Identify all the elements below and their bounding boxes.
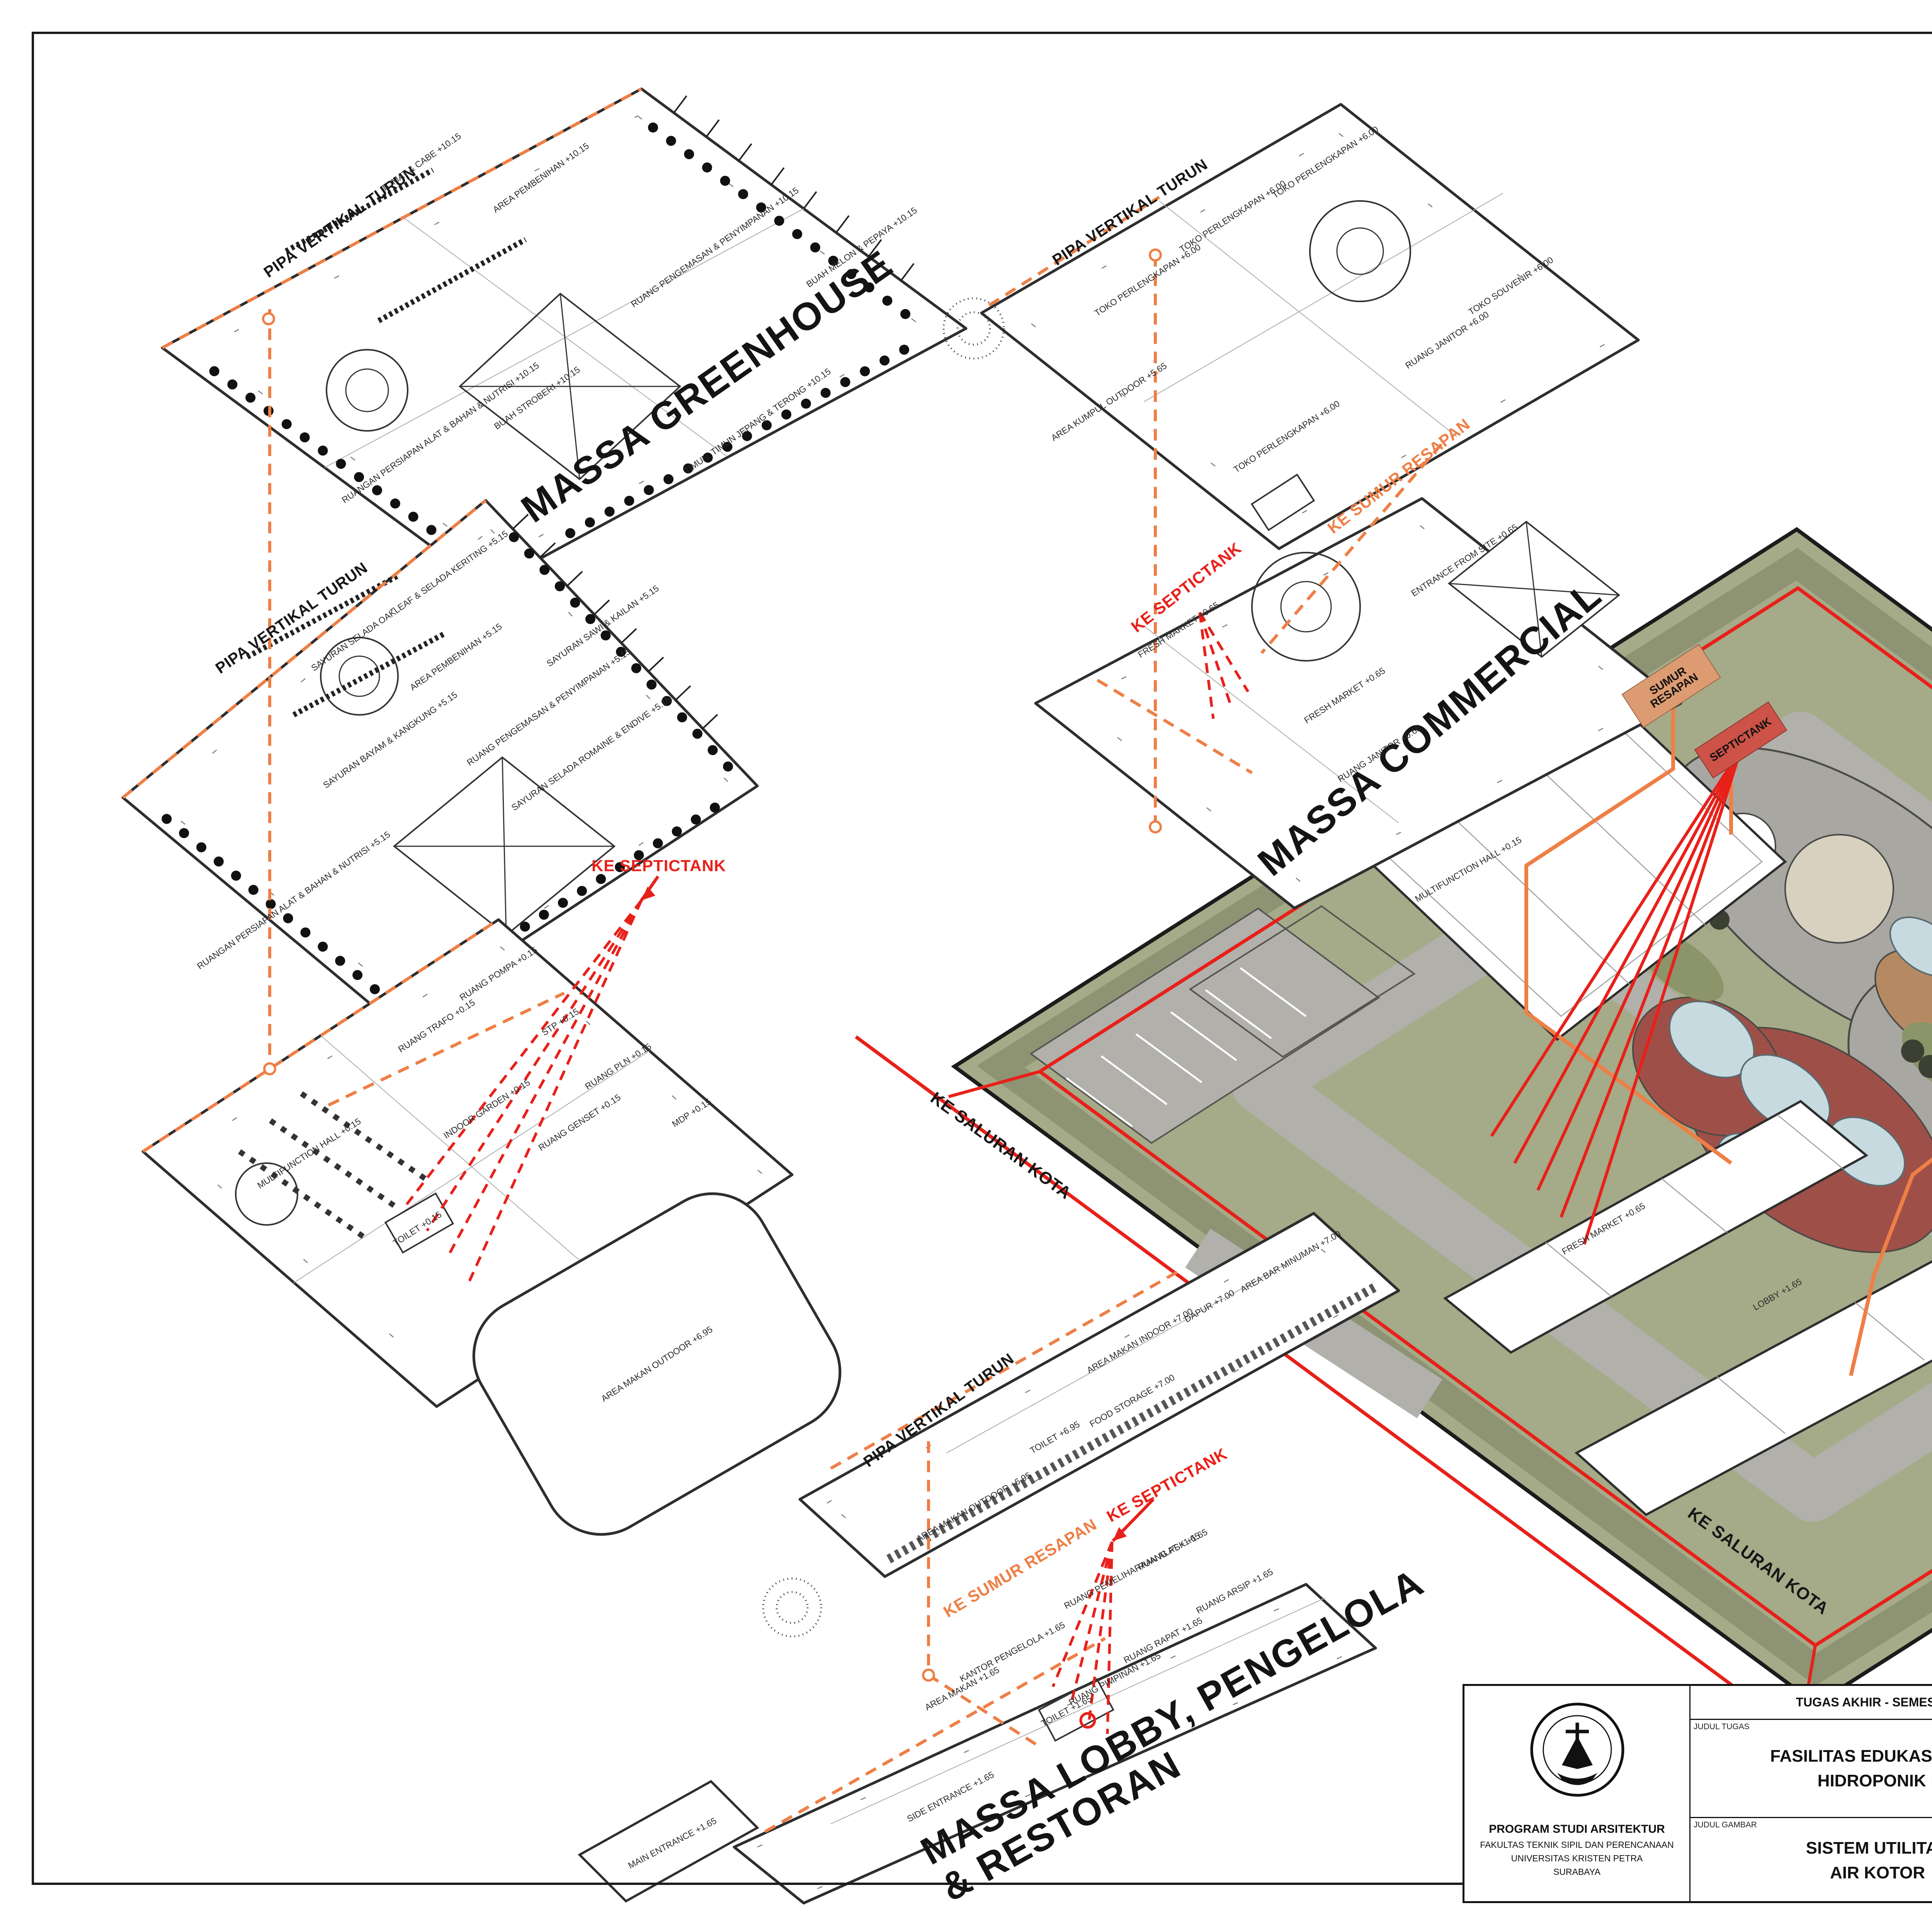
title-block-logo-cell: PROGRAM STUDI ARSITEKTUR FAKULTAS TEKNIK…: [1464, 1686, 1690, 1903]
institution-line4: SURABAYA: [1553, 1867, 1600, 1877]
institution-line2: FAKULTAS TEKNIK SIPIL DAN PERENCANAAN: [1480, 1840, 1673, 1850]
judul-tugas-line2: HIDROPONIK DI PASURUAN: [1818, 1771, 1932, 1791]
university-logo: [1464, 1686, 1690, 1810]
institution-text: PROGRAM STUDI ARSITEKTUR FAKULTAS TEKNIK…: [1464, 1800, 1689, 1900]
title-block: PROGRAM STUDI ARSITEKTUR FAKULTAS TEKNIK…: [1463, 1684, 1932, 1903]
ke-septictank-greenhouse: KE SEPTICTANK: [592, 857, 726, 874]
institution-line3: UNIVERSITAS KRISTEN PETRA: [1511, 1853, 1643, 1864]
title-block-header-cell: TUGAS AKHIR - SEMESTER GENAP 2023/2024: [1690, 1686, 1932, 1720]
judul-gambar-cell: JUDUL GAMBAR SISTEM UTILITAS AIR KOTOR: [1690, 1818, 1932, 1903]
judul-tugas-cell: JUDUL TUGAS FASILITAS EDUKASI WISATA TAN…: [1690, 1720, 1932, 1818]
drawing-canvas: [0, 0, 1932, 1917]
judul-gambar-line2: AIR KOTOR: [1830, 1863, 1925, 1883]
plan-commercial-l2: [944, 104, 1638, 549]
judul-tugas-line1: FASILITAS EDUKASI WISATA TANAMAN: [1770, 1747, 1932, 1766]
sheet-header: TUGAS AKHIR - SEMESTER GENAP 2023/2024: [1690, 1686, 1932, 1719]
institution-line1: PROGRAM STUDI ARSITEKTUR: [1489, 1823, 1665, 1836]
judul-gambar-line1: SISTEM UTILITAS: [1806, 1839, 1932, 1858]
drawing-sheet: MASSA GREENHOUSE MASSA COMMERCIAL MASSA …: [0, 0, 1932, 1917]
